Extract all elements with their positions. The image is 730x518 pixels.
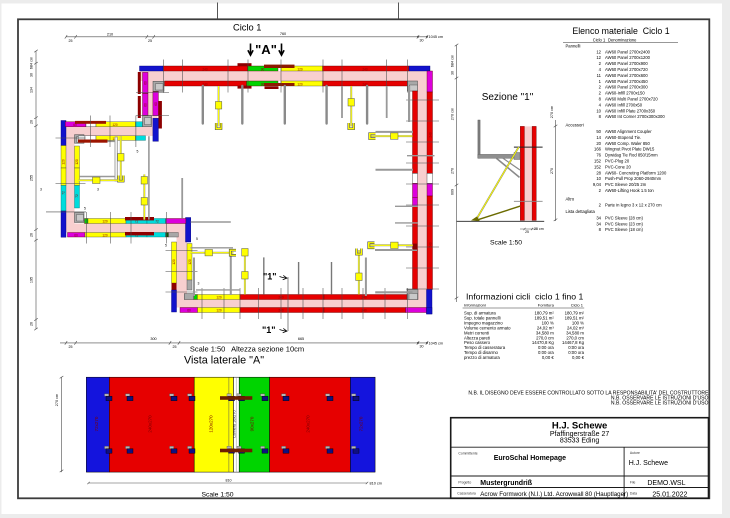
- svg-text:Lamiera 16x270: Lamiera 16x270: [232, 410, 236, 437]
- svg-text:120: 120: [112, 123, 118, 127]
- svg-text:AW60-Lifting Hook 1.5 ton: AW60-Lifting Hook 1.5 ton: [605, 188, 654, 193]
- svg-text:30: 30: [451, 71, 455, 75]
- svg-text:Ciclo 1: Ciclo 1: [593, 37, 606, 42]
- svg-text:14: 14: [596, 135, 601, 140]
- svg-text:Ciclo 1: Ciclo 1: [233, 23, 261, 33]
- svg-text:Vista laterale "A": Vista laterale "A": [184, 355, 264, 367]
- svg-text:25.01.2022: 25.01.2022: [652, 491, 687, 498]
- svg-text:5: 5: [165, 244, 167, 248]
- svg-text:34: 34: [596, 221, 601, 226]
- svg-text:25 cm: 25 cm: [534, 227, 544, 231]
- svg-text:Dywidag Tie Rod 850/15mm: Dywidag Tie Rod 850/15mm: [605, 153, 658, 158]
- svg-text:120: 120: [102, 220, 108, 224]
- svg-text:120: 120: [172, 259, 176, 265]
- svg-text:AW60 Panel 2700x720: AW60 Panel 2700x720: [605, 67, 648, 72]
- svg-text:25: 25: [173, 345, 177, 349]
- svg-text:120: 120: [297, 67, 303, 71]
- svg-text:120: 120: [216, 309, 222, 313]
- svg-text:Sezione "1": Sezione "1": [482, 92, 534, 103]
- svg-text:3: 3: [97, 188, 99, 192]
- svg-text:Wingnut Pivot Plate DW15: Wingnut Pivot Plate DW15: [605, 147, 655, 152]
- svg-text:90: 90: [261, 67, 265, 71]
- svg-text:240x270: 240x270: [305, 415, 310, 433]
- svg-text:684 cm: 684 cm: [30, 57, 34, 69]
- svg-text:Accessori: Accessori: [566, 122, 584, 127]
- svg-text:PVC Sleeve (28 cm): PVC Sleeve (28 cm): [605, 215, 644, 220]
- svg-text:Elenco materiale Ciclo 1: Elenco materiale Ciclo 1: [572, 26, 669, 36]
- svg-text:34: 34: [596, 215, 601, 220]
- svg-text:120: 120: [188, 259, 192, 265]
- svg-text:240: 240: [361, 309, 367, 313]
- svg-text:270 cm: 270 cm: [550, 106, 554, 118]
- svg-text:Altro: Altro: [566, 196, 575, 201]
- svg-text:60: 60: [144, 81, 148, 85]
- svg-text:Mustergrundriß: Mustergrundriß: [480, 480, 532, 487]
- svg-text:"1": "1": [263, 272, 277, 282]
- svg-text:AW60 Panel 2700x450: AW60 Panel 2700x450: [605, 79, 648, 84]
- svg-text:25: 25: [69, 345, 73, 349]
- svg-text:PVC Sleeve (23 cm): PVC Sleeve (23 cm): [605, 221, 644, 226]
- svg-text:810 cm: 810 cm: [370, 482, 382, 486]
- svg-text:90x270: 90x270: [249, 416, 254, 431]
- svg-text:152: 152: [594, 164, 602, 169]
- svg-text:26: 26: [30, 233, 34, 237]
- svg-text:AW60 Panel 2700x600: AW60 Panel 2700x600: [605, 73, 648, 78]
- svg-text:134: 134: [30, 87, 34, 93]
- svg-text:25: 25: [69, 39, 73, 43]
- svg-text:1045 cm: 1045 cm: [429, 35, 444, 39]
- svg-text:25: 25: [148, 39, 152, 43]
- svg-text:5: 5: [137, 150, 139, 154]
- svg-text:Parte in legno 3 x 12 x 270 cm: Parte in legno 3 x 12 x 270 cm: [605, 203, 662, 208]
- svg-text:Ciclo 1: Ciclo 1: [571, 302, 584, 307]
- svg-text:AW60 Alignment Coupler: AW60 Alignment Coupler: [605, 129, 652, 134]
- svg-text:DEMO.WSL: DEMO.WSL: [647, 480, 685, 487]
- svg-text:26: 26: [30, 322, 34, 326]
- svg-text:120: 120: [297, 82, 303, 86]
- svg-text:810: 810: [226, 479, 232, 483]
- svg-text:120: 120: [75, 159, 79, 165]
- svg-text:0,00 €: 0,00 €: [572, 355, 585, 360]
- svg-text:Scale 1:50: Scale 1:50: [201, 492, 233, 499]
- svg-text:83533 Eding: 83533 Eding: [560, 438, 599, 445]
- svg-text:PVC-Cone 20: PVC-Cone 20: [605, 164, 632, 169]
- svg-text:AW60 Multi Panel 2700x720: AW60 Multi Panel 2700x720: [605, 97, 658, 102]
- svg-text:"1": "1": [262, 325, 276, 335]
- svg-text:25: 25: [525, 230, 529, 234]
- svg-text:72: 72: [155, 220, 159, 224]
- svg-text:AW60 Comp. Waler 850: AW60 Comp. Waler 850: [605, 141, 651, 146]
- svg-text:120: 120: [216, 296, 222, 300]
- svg-text:152: 152: [594, 159, 602, 164]
- svg-text:12: 12: [596, 49, 601, 54]
- svg-text:5: 5: [196, 237, 198, 241]
- svg-text:10: 10: [596, 176, 601, 181]
- svg-text:240x270: 240x270: [148, 415, 153, 433]
- svg-text:300: 300: [150, 337, 156, 341]
- svg-text:prezzo di armatura: prezzo di armatura: [464, 355, 500, 360]
- svg-text:240: 240: [202, 67, 208, 71]
- svg-text:60: 60: [187, 309, 191, 313]
- svg-text:AW60 Infill Plate 2700x350: AW60 Infill Plate 2700x350: [605, 108, 656, 113]
- svg-text:PVC Sleeve 20/25 2m: PVC Sleeve 20/25 2m: [605, 182, 647, 187]
- svg-text:760: 760: [280, 32, 286, 36]
- svg-text:PVC Sleeve (18 cm): PVC Sleeve (18 cm): [605, 227, 644, 232]
- svg-text:AW60 Panel 2700x1200: AW60 Panel 2700x1200: [605, 55, 651, 60]
- svg-text:0,00 €: 0,00 €: [542, 355, 555, 360]
- svg-text:AW60- Concreting Platform 1200: AW60- Concreting Platform 1200: [605, 170, 667, 175]
- svg-text:240: 240: [362, 67, 368, 71]
- svg-text:72: 72: [62, 191, 66, 195]
- svg-text:"A": "A": [255, 42, 277, 57]
- svg-text:Progetto: Progetto: [458, 480, 471, 484]
- svg-text:Autore: Autore: [630, 451, 640, 455]
- svg-text:166: 166: [594, 147, 602, 152]
- svg-text:76: 76: [596, 153, 601, 158]
- svg-text:120x270: 120x270: [209, 415, 214, 433]
- svg-text:Scale 1:50 Altezza sezione 1: Scale 1:50 Altezza sezione 10cm: [190, 345, 304, 354]
- svg-text:10: 10: [596, 108, 601, 113]
- svg-text:60: 60: [74, 233, 78, 237]
- svg-text:EuroSchal Homepage: EuroSchal Homepage: [494, 455, 566, 462]
- svg-text:File: File: [630, 480, 636, 484]
- svg-text:270 cm: 270 cm: [55, 394, 59, 406]
- svg-text:60: 60: [154, 102, 158, 106]
- svg-text:30: 30: [30, 73, 34, 77]
- svg-text:240: 240: [428, 132, 432, 138]
- svg-text:210: 210: [107, 33, 113, 37]
- svg-text:AW60 Panel 2700x900: AW60 Panel 2700x900: [605, 61, 648, 66]
- svg-text:PVC-Plug 20: PVC-Plug 20: [605, 159, 630, 164]
- svg-text:AW60 Infill 2700x50: AW60 Infill 2700x50: [605, 102, 643, 107]
- svg-text:270: 270: [550, 168, 554, 174]
- svg-text:20: 20: [30, 120, 34, 124]
- svg-text:30: 30: [420, 345, 424, 349]
- svg-text:609: 609: [451, 189, 455, 195]
- svg-text:3: 3: [198, 282, 200, 286]
- svg-text:Fornitura: Fornitura: [538, 302, 555, 307]
- svg-text:684 cm: 684 cm: [451, 55, 455, 67]
- svg-text:120: 120: [102, 233, 108, 237]
- svg-text:Committente: Committente: [458, 452, 477, 456]
- svg-text:11: 11: [597, 73, 602, 78]
- svg-text:120: 120: [62, 159, 66, 165]
- svg-text:3: 3: [40, 188, 42, 192]
- svg-text:AW60-Stopend Tie.: AW60-Stopend Tie.: [605, 135, 641, 140]
- svg-text:20: 20: [596, 141, 601, 146]
- svg-text:50: 50: [596, 129, 601, 134]
- svg-text:30: 30: [420, 39, 424, 43]
- svg-text:AW60-Infill 2700x150: AW60-Infill 2700x150: [605, 91, 645, 96]
- svg-text:Push-Pull Prop 2060-2940mm: Push-Pull Prop 2060-2940mm: [605, 176, 662, 181]
- svg-text:270 cm: 270 cm: [451, 108, 455, 120]
- svg-text:5: 5: [84, 207, 86, 211]
- svg-text:270: 270: [451, 168, 455, 174]
- svg-text:Scale 1:50: Scale 1:50: [490, 240, 522, 247]
- svg-text:H.J. Schewe: H.J. Schewe: [629, 460, 668, 467]
- svg-text:AW60 Panel 2700x2400: AW60 Panel 2700x2400: [605, 49, 651, 54]
- svg-text:60: 60: [144, 103, 148, 107]
- svg-text:Acrow Formwork (N.I.) Ltd. Acr: Acrow Formwork (N.I.) Ltd. Acrowwall 80 …: [480, 491, 628, 498]
- svg-text:255: 255: [30, 175, 34, 181]
- svg-text:240: 240: [361, 296, 367, 300]
- svg-text:Pannelli: Pannelli: [566, 44, 581, 49]
- svg-text:28: 28: [596, 170, 601, 175]
- svg-text:72: 72: [75, 194, 79, 198]
- svg-text:90: 90: [261, 82, 265, 86]
- svg-text:Data: Data: [630, 492, 637, 496]
- svg-text:1045 cm: 1045 cm: [429, 341, 444, 345]
- svg-text:Informazioni cicli ciclo 1 fi: Informazioni cicli ciclo 1 fino 1: [466, 292, 583, 302]
- svg-text:665: 665: [298, 337, 304, 341]
- svg-text:195: 195: [30, 277, 34, 283]
- svg-text:Denominazione: Denominazione: [608, 37, 637, 42]
- svg-text:Casseratura: Casseratura: [457, 492, 476, 496]
- svg-text:AW60 Panel 2700x300: AW60 Panel 2700x300: [605, 85, 648, 90]
- svg-text:72x270: 72x270: [94, 416, 99, 431]
- svg-text:Lista dettagliata: Lista dettagliata: [566, 209, 596, 214]
- svg-text:Informazioni: Informazioni: [464, 302, 486, 307]
- svg-text:AW60 Int Corner 2700x300x300: AW60 Int Corner 2700x300x300: [605, 114, 665, 119]
- svg-text:9,04: 9,04: [593, 182, 602, 187]
- svg-text:72x270: 72x270: [359, 416, 364, 431]
- svg-text:N.B. OSSERVARE LE ISTRUZIONI D: N.B. OSSERVARE LE ISTRUZIONI D'USO: [611, 400, 709, 406]
- svg-text:12: 12: [596, 55, 601, 60]
